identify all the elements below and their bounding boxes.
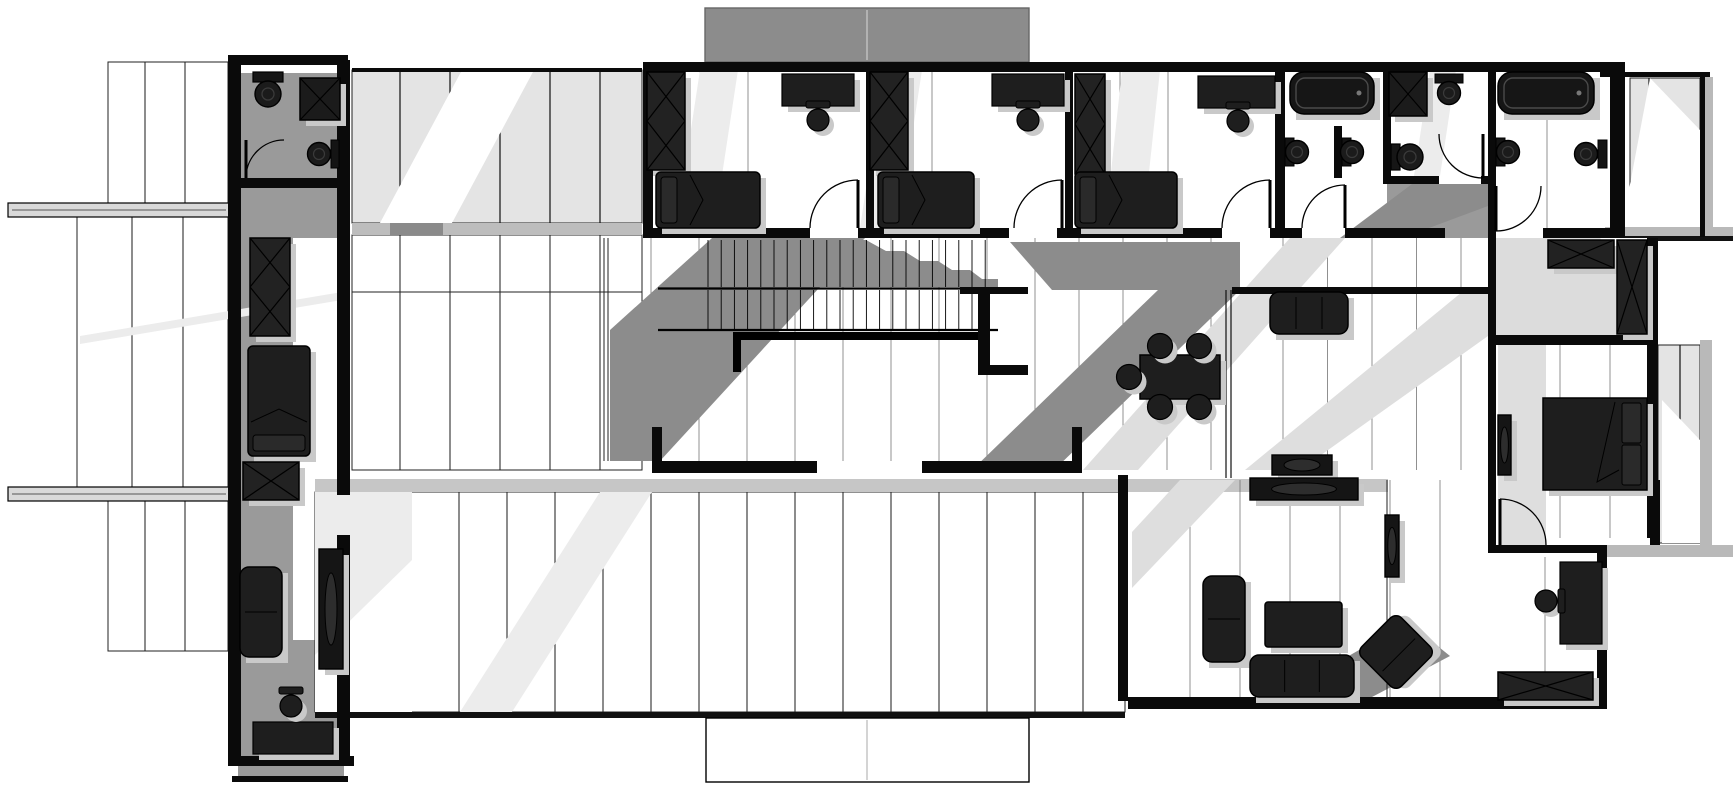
dining-chair-1-seat xyxy=(1148,334,1173,359)
floor-plan xyxy=(0,0,1733,787)
wall-dining-north-b xyxy=(1232,287,1488,294)
bathtub-1 xyxy=(1290,72,1380,120)
chair-west-back xyxy=(279,687,303,694)
door-bedroom-3-swing-arc xyxy=(1222,180,1270,228)
bed-bedroom-1 xyxy=(656,172,766,234)
wall-row-south-5 xyxy=(1345,228,1445,238)
stair-guard-rail xyxy=(737,336,983,372)
deck-south-field xyxy=(315,492,1125,712)
cantilever-upper xyxy=(8,203,230,217)
chair-west-seat xyxy=(280,695,302,717)
slab-bottom xyxy=(706,718,1029,782)
wall-hall-south-left xyxy=(652,461,817,473)
bed-bedroom-2-pillow xyxy=(883,177,899,223)
tv-unit-living xyxy=(1385,515,1405,583)
fascia-lower-right xyxy=(1700,340,1712,555)
wall-dining-north-a xyxy=(960,287,1028,294)
sofa-west xyxy=(240,567,288,663)
media-unit-west-lens xyxy=(325,573,337,645)
wall-hall-south-right xyxy=(922,461,1082,473)
wardrobe-bedroom-3 xyxy=(1075,74,1111,180)
chair-bedroom-3-back xyxy=(1226,102,1250,109)
sink-bath-1-a-basin xyxy=(1286,141,1309,164)
wall-living-west xyxy=(1118,475,1128,701)
toilet-west-bath-bowl xyxy=(255,81,281,107)
toilet-bath-2 xyxy=(1391,144,1423,170)
chest-west xyxy=(243,462,305,506)
sink-bath-3-b xyxy=(1575,140,1608,168)
sofa-living-2seat xyxy=(1203,576,1251,668)
bed-master xyxy=(1543,398,1653,496)
panel-mid-upper-field xyxy=(352,235,642,470)
wall-terrace-ur-north xyxy=(1600,72,1710,77)
chair-bedroom-1 xyxy=(806,101,834,136)
sink-west-bath-basin xyxy=(308,143,331,166)
wall-glass-top-edge xyxy=(352,68,642,72)
bathtub-2 xyxy=(1498,72,1600,120)
deck-south xyxy=(315,492,1125,712)
roof-slab-top xyxy=(705,8,1029,62)
toilet-bath-2-bowl xyxy=(1397,144,1423,170)
door-bedroom-2 xyxy=(1014,180,1062,228)
wardrobe-master-corridor-h xyxy=(1548,240,1620,274)
deck-west-upper-field xyxy=(108,62,228,203)
wardrobe-bedroom-1 xyxy=(647,72,691,176)
deck-west-mid-field xyxy=(77,217,228,487)
kitchen-island-lens xyxy=(1284,459,1320,471)
door-bedroom-1 xyxy=(810,180,858,228)
door-bedroom-2-swing-arc xyxy=(1014,180,1062,228)
deck-west-lower xyxy=(108,501,228,651)
wardrobe-bedroom-1-box xyxy=(647,72,685,170)
sheen-living xyxy=(1132,480,1235,588)
wall-bath-2-3-master-west xyxy=(1488,62,1496,545)
dining-chair-2-seat xyxy=(1187,334,1212,359)
wall-bath-3-east xyxy=(1610,62,1625,238)
wall-hall-south-left-stub xyxy=(652,427,662,467)
desk-study xyxy=(1560,562,1608,650)
wall-hall-south-right-stub xyxy=(1072,427,1082,473)
wardrobe-study xyxy=(1498,672,1599,706)
wall-bath-2-south-a xyxy=(1383,176,1439,184)
sofa-living-3seat-body xyxy=(1250,655,1354,697)
chair-study-seat xyxy=(1535,590,1557,612)
door-bath-2-swing-arc xyxy=(1439,134,1483,178)
door-bath-1-swing-arc xyxy=(1302,185,1345,228)
wall-west-wing-west xyxy=(228,62,241,766)
media-unit-west xyxy=(319,549,349,675)
bed-bedroom-2 xyxy=(878,172,980,234)
tv-unit-living-lens xyxy=(1388,527,1396,564)
door-bath-3 xyxy=(1496,186,1541,231)
wall-terrace-ur-east xyxy=(1700,72,1705,237)
sink-bath-3-b-splash xyxy=(1598,140,1607,168)
deck-west-mid xyxy=(77,217,228,487)
wardrobe-west-box xyxy=(250,238,290,336)
bed-master-pillow-2 xyxy=(1622,445,1641,485)
chair-bedroom-2-seat xyxy=(1017,109,1039,131)
bed-west xyxy=(248,346,316,462)
bed-master-pillow-1 xyxy=(1622,403,1641,443)
wall-west-wing-south-edge xyxy=(232,776,348,782)
wardrobe-bedroom-3-box xyxy=(1075,74,1105,174)
fireplace xyxy=(1250,478,1364,506)
sink-west-bath xyxy=(308,140,340,168)
sink-bath-1-b-basin xyxy=(1341,141,1364,164)
shower-west-bath xyxy=(300,78,346,126)
bed-west-pillow xyxy=(253,435,305,451)
glass-band-dark xyxy=(390,223,443,235)
desk-west xyxy=(253,722,339,760)
sink-bath-2 xyxy=(1435,74,1463,105)
chair-bedroom-3-seat xyxy=(1227,110,1249,132)
deck-west-upper xyxy=(108,62,228,203)
sofa-lounge-body xyxy=(1270,292,1348,334)
sofa-lounge xyxy=(1270,292,1354,340)
chair-bedroom-2 xyxy=(1016,101,1044,136)
wall-study-north xyxy=(1488,545,1607,553)
sink-bath-2-basin xyxy=(1438,82,1461,105)
floor-west-patch xyxy=(293,188,342,238)
panel-mid-upper xyxy=(352,235,642,470)
shower-bath-2 xyxy=(1389,72,1433,122)
bathtub-1-drain xyxy=(1357,91,1362,96)
coffee-table-top xyxy=(1265,602,1342,647)
door-bath-2 xyxy=(1439,134,1483,178)
bed-bedroom-3-pillow xyxy=(1080,177,1096,223)
cap-west-south xyxy=(238,766,344,776)
wall-kitchen-L-horizontal xyxy=(978,365,1028,375)
sink-bath-3-b-basin xyxy=(1575,143,1598,166)
sink-bath-1-b xyxy=(1341,138,1364,166)
wall-north xyxy=(643,62,1610,72)
kitchen-island xyxy=(1272,455,1338,481)
door-bath-3-swing-arc xyxy=(1496,186,1541,231)
desk-west-top xyxy=(253,722,333,754)
wall-row-south-4 xyxy=(1270,228,1302,238)
door-bath-1 xyxy=(1302,185,1345,228)
wardrobe-master-corridor-v xyxy=(1617,240,1653,340)
wardrobe-bedroom-2 xyxy=(870,72,914,176)
fireplace-lens xyxy=(1272,483,1337,495)
cantilever-lower xyxy=(8,487,230,501)
dining-chair-4-seat xyxy=(1187,395,1212,420)
floor-plan-canvas xyxy=(0,0,1733,787)
sink-bath-3-a-basin xyxy=(1497,141,1520,164)
chair-bedroom-2-back xyxy=(1016,101,1040,108)
deck-west-lower-field xyxy=(108,501,228,651)
fascia-upper-right xyxy=(1705,77,1713,237)
sink-bath-1-a xyxy=(1285,138,1309,166)
door-bedroom-3 xyxy=(1222,180,1270,228)
shadow-hall-right xyxy=(1010,242,1240,290)
chair-bedroom-1-seat xyxy=(807,109,829,131)
dining-chair-5-seat xyxy=(1117,365,1142,390)
dresser-master-lens xyxy=(1501,427,1509,463)
door-bedroom-1-swing-arc xyxy=(810,180,858,228)
bed-bedroom-3 xyxy=(1075,172,1183,234)
wall-west-bath-south xyxy=(241,178,342,188)
chair-study-back xyxy=(1558,589,1565,613)
deck-south-edge xyxy=(315,712,1125,718)
dresser-master xyxy=(1498,415,1517,481)
coffee-table xyxy=(1265,602,1348,653)
sill-lower-right xyxy=(1600,545,1733,557)
wardrobe-bedroom-2-box xyxy=(870,72,908,170)
chair-bedroom-1-back xyxy=(806,101,830,108)
dining-chair-3-seat xyxy=(1148,395,1173,420)
wall-row-south-6 xyxy=(1543,228,1610,238)
sink-west-bath-splash xyxy=(331,140,339,168)
sink-bath-3-a xyxy=(1496,138,1520,166)
chair-study xyxy=(1535,589,1565,617)
toilet-west-bath xyxy=(253,72,283,107)
sofa-living-3seat xyxy=(1250,655,1360,703)
wall-kitchen-L-vertical xyxy=(978,287,990,375)
wardrobe-west xyxy=(250,238,296,342)
bed-bedroom-1-pillow xyxy=(661,177,677,223)
bathtub-2-drain xyxy=(1577,91,1582,96)
chair-bedroom-3 xyxy=(1226,102,1254,137)
wall-west-wing-north xyxy=(228,55,348,65)
desk-study-top xyxy=(1560,562,1602,644)
